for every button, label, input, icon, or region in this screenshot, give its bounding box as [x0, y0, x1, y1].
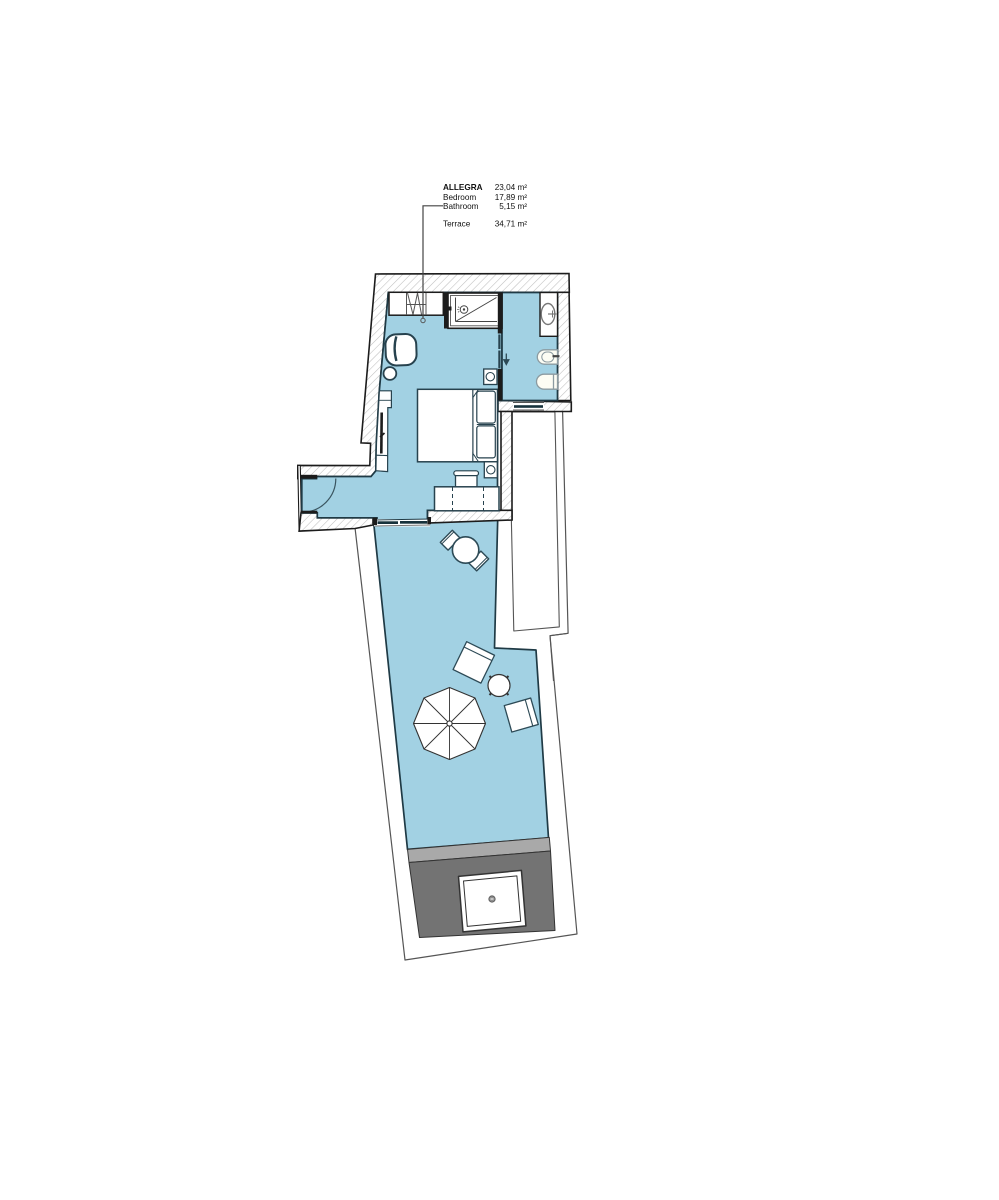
svg-text:17,89 m²: 17,89 m²: [495, 193, 528, 202]
svg-text:Terrace: Terrace: [443, 220, 471, 229]
svg-text:23,04 m²: 23,04 m²: [495, 183, 528, 192]
svg-text:Bathroom: Bathroom: [443, 202, 479, 211]
svg-text:5,15 m²: 5,15 m²: [499, 202, 527, 211]
svg-text:ALLEGRA: ALLEGRA: [443, 183, 483, 192]
svg-text:Bedroom: Bedroom: [443, 193, 476, 202]
svg-text:34,71 m²: 34,71 m²: [495, 220, 528, 229]
